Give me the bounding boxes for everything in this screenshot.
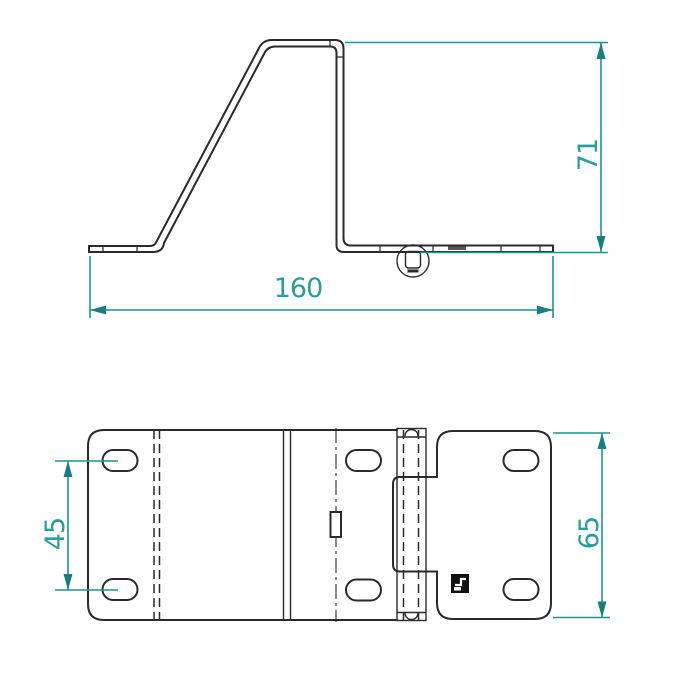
dim-65-value: 65 (574, 517, 605, 549)
dimension-45: 45 (40, 461, 118, 590)
plan-view: 45 65 (40, 428, 610, 622)
hinge-knuckle-joints (397, 437, 426, 613)
slot-hole-mid-bottom (346, 580, 381, 601)
hinge-pin-hidden-lines (404, 430, 419, 620)
dim-45-arrow-down (64, 574, 73, 590)
dim-65-arrow-down (598, 602, 607, 618)
hinge-pin-end-bottom (405, 613, 418, 620)
hinge-barrel (397, 429, 426, 621)
hinge-pin-end-top (405, 430, 418, 436)
dim-65-arrow-up (598, 433, 607, 449)
side-profile-view: 71 160 (89, 40, 608, 318)
dim-45-value: 45 (40, 518, 71, 550)
dimension-71: 71 (345, 43, 608, 253)
slot-hole-right-bottom (504, 579, 539, 600)
dim-160-value: 160 (274, 273, 323, 304)
dim-160-arrow-left (90, 306, 106, 315)
bend-line-solid-pair (284, 430, 291, 620)
drawing-svg: 71 160 (0, 0, 700, 700)
edge-stamp-mark (448, 247, 466, 251)
dimension-160: 160 (90, 256, 553, 318)
profile-surface-upper (89, 40, 553, 246)
center-tab-hole (331, 512, 342, 537)
dim-71-arrow-down (597, 236, 606, 252)
brand-stamp-dot (454, 587, 461, 591)
bend-line-dashed-pair (154, 430, 160, 620)
dim-160-arrow-right (537, 306, 553, 315)
dim-71-arrow-up (597, 43, 606, 60)
dim-45-arrow-up (64, 461, 73, 477)
dimension-65: 65 (553, 433, 610, 618)
slot-hole-mid-top (346, 450, 381, 471)
drawing-sheet: 71 160 (0, 0, 700, 700)
dim-71-value: 71 (573, 139, 604, 171)
bolt-square-neck (406, 252, 421, 269)
profile-surface-lower (89, 47, 553, 253)
hinge-tab-outline (393, 477, 437, 572)
brand-stamp-logo (451, 574, 469, 593)
slot-hole-right-top (504, 450, 539, 471)
